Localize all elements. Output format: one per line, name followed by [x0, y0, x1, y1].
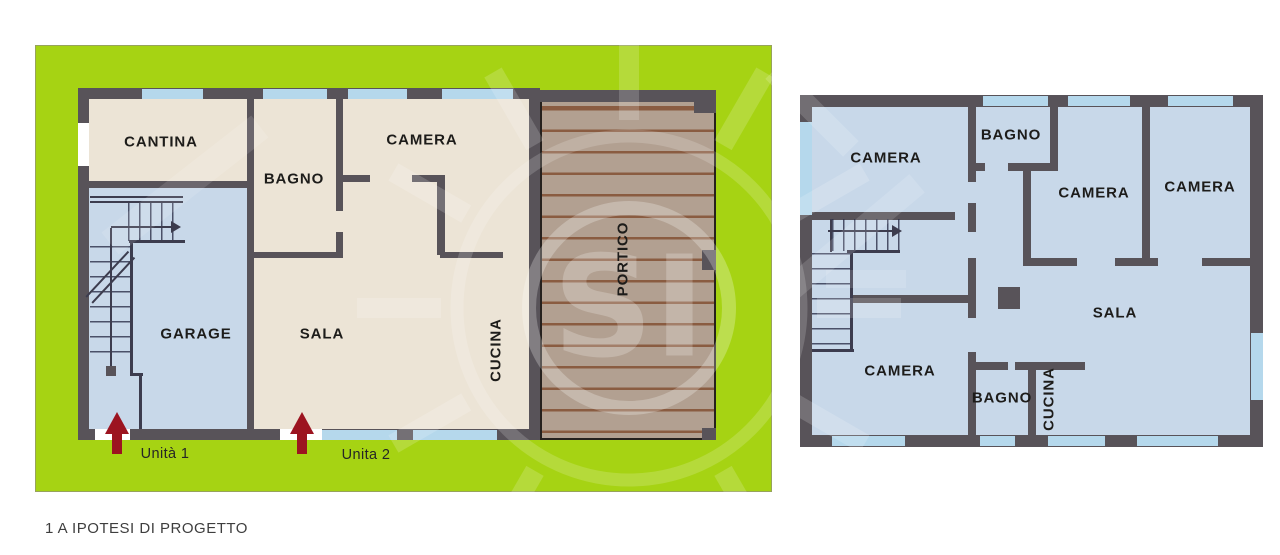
room-label-bagno-top: BAGNO — [981, 127, 1041, 144]
room-label-sala: SALA — [1093, 305, 1137, 322]
wall-segment — [968, 163, 985, 171]
window — [348, 89, 407, 99]
floor-plan-drawing: CANTINA BAGNO CAMERA GARAGE SALA CUCINA … — [0, 0, 1280, 555]
entrance-arrow-unit1 — [105, 412, 129, 434]
window — [322, 430, 397, 440]
wall-segment — [1115, 258, 1158, 266]
wall-segment — [1202, 258, 1250, 266]
stair-edge — [850, 250, 853, 352]
stair-edge — [812, 349, 854, 352]
wall-segment — [412, 175, 440, 182]
room-label-camera: CAMERA — [386, 132, 457, 149]
entrance-arrow-unit1-stem — [112, 434, 122, 454]
wall-segment — [254, 252, 343, 258]
room-label-camera-sw: CAMERA — [864, 363, 935, 380]
wall-segment — [437, 175, 445, 255]
wall-segment — [343, 175, 370, 182]
unit-1-label: Unità 1 — [141, 446, 190, 462]
wall-segment — [968, 258, 976, 318]
room-label-sala: SALA — [300, 326, 344, 343]
window — [263, 89, 327, 99]
room-label-camera-mid: CAMERA — [1058, 185, 1129, 202]
room-label-cantina: CANTINA — [124, 134, 198, 151]
wall-segment — [540, 90, 716, 102]
wall-segment — [976, 362, 1008, 370]
room-label-portico: PORTICO — [615, 222, 632, 297]
window — [800, 122, 812, 215]
stair-edge — [139, 376, 142, 429]
window — [1068, 96, 1130, 106]
stair-direction-line — [828, 230, 894, 232]
room-label-garage: GARAGE — [160, 326, 231, 343]
stair-post — [106, 366, 116, 376]
wall-segment — [853, 295, 968, 303]
window — [1137, 436, 1218, 446]
stair-direction-arrow-icon — [171, 221, 181, 233]
room-label-cucina: CUCINA — [1041, 367, 1058, 431]
stair-direction-line — [111, 226, 173, 228]
room-label-bagno-bottom: BAGNO — [972, 390, 1032, 407]
entrance-arrow-unit2 — [290, 412, 314, 434]
room-label-cucina: CUCINA — [488, 318, 505, 382]
wall-segment — [336, 99, 343, 211]
window — [980, 436, 1015, 446]
wall-segment — [1023, 171, 1031, 258]
window — [983, 96, 1048, 106]
room-label-camera-ne: CAMERA — [1164, 179, 1235, 196]
entrance-arrow-unit2-stem — [297, 434, 307, 454]
stair-edge — [830, 219, 832, 252]
wall-segment — [702, 250, 716, 270]
wall-segment — [89, 181, 247, 188]
wall-segment — [998, 287, 1020, 309]
stair-edge — [129, 240, 185, 243]
wall-segment — [1023, 258, 1077, 266]
stair-direction-line — [110, 228, 112, 366]
window — [1251, 333, 1263, 400]
unit-2-label: Unita 2 — [342, 447, 391, 463]
window — [1168, 96, 1233, 106]
stair-edge — [847, 250, 900, 253]
wall-segment — [440, 252, 503, 258]
wall-segment — [1142, 107, 1150, 266]
stair-treads-lower — [812, 253, 850, 350]
window — [1048, 436, 1105, 446]
door-opening — [78, 123, 89, 166]
window — [442, 89, 513, 99]
wall-segment — [694, 102, 716, 113]
wall-segment — [702, 428, 716, 440]
stair-treads-upper — [832, 219, 900, 251]
stair-edge — [130, 243, 133, 375]
caption: 1 A IPOTESI DI PROGETTO — [45, 520, 248, 537]
wall-segment — [968, 203, 976, 232]
stair-edge — [90, 196, 183, 198]
room-label-bagno: BAGNO — [264, 171, 324, 188]
stair-edge — [90, 201, 183, 203]
window — [142, 89, 203, 99]
window — [832, 436, 905, 446]
wall-segment — [1050, 107, 1058, 171]
stair-direction-arrow-icon — [892, 225, 902, 237]
wall-segment — [247, 99, 254, 429]
room-label-camera-nw: CAMERA — [850, 150, 921, 167]
watermark-ray — [619, 496, 639, 555]
window — [413, 430, 497, 440]
